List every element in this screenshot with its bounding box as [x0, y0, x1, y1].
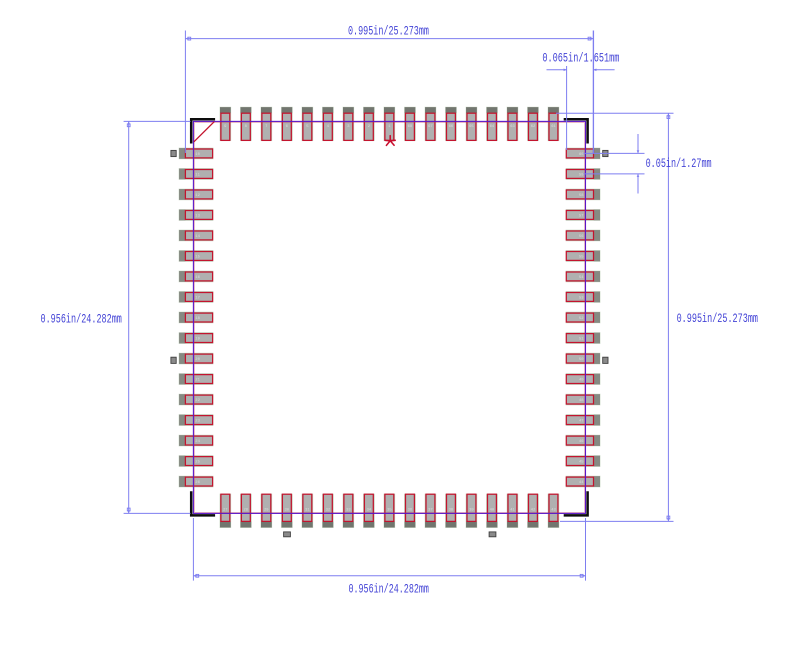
svg-text:40: 40 — [490, 508, 495, 512]
svg-text:30: 30 — [285, 508, 290, 512]
svg-text:66: 66 — [449, 125, 454, 129]
svg-text:29: 29 — [264, 508, 269, 512]
svg-text:27: 27 — [223, 508, 228, 512]
svg-text:42: 42 — [531, 508, 536, 512]
svg-text:26: 26 — [195, 481, 200, 485]
svg-text:34: 34 — [367, 508, 372, 512]
svg-text:38: 38 — [449, 508, 454, 512]
svg-text:14: 14 — [195, 235, 200, 239]
svg-text:19: 19 — [195, 338, 200, 342]
svg-text:0.995in/25.273mm: 0.995in/25.273mm — [677, 311, 759, 326]
svg-text:58: 58 — [579, 194, 584, 198]
svg-text:62: 62 — [531, 125, 536, 129]
svg-text:55: 55 — [579, 256, 584, 260]
svg-text:51: 51 — [579, 338, 584, 342]
svg-text:63: 63 — [510, 125, 515, 129]
svg-text:31: 31 — [305, 508, 310, 512]
svg-text:17: 17 — [195, 297, 200, 301]
svg-text:54: 54 — [579, 276, 584, 280]
svg-text:11: 11 — [195, 174, 200, 178]
svg-text:65: 65 — [469, 125, 474, 129]
svg-text:24: 24 — [195, 440, 200, 444]
svg-text:50: 50 — [579, 358, 584, 362]
svg-text:21: 21 — [195, 379, 200, 383]
svg-text:44: 44 — [579, 481, 584, 485]
svg-text:7: 7 — [265, 125, 267, 129]
svg-text:18: 18 — [195, 317, 200, 321]
svg-text:45: 45 — [579, 461, 584, 465]
svg-text:12: 12 — [195, 194, 200, 198]
svg-text:48: 48 — [579, 399, 584, 403]
svg-text:33: 33 — [346, 508, 351, 512]
svg-text:46: 46 — [579, 440, 584, 444]
svg-text:0.995in/25.273mm: 0.995in/25.273mm — [348, 23, 429, 38]
svg-text:57: 57 — [579, 215, 584, 219]
svg-text:28: 28 — [244, 508, 249, 512]
svg-text:0.956in/24.282mm: 0.956in/24.282mm — [41, 311, 123, 326]
svg-text:64: 64 — [490, 125, 495, 129]
svg-text:37: 37 — [428, 508, 433, 512]
svg-text:25: 25 — [195, 461, 200, 465]
svg-text:0.05in/1.27mm: 0.05in/1.27mm — [646, 156, 712, 171]
svg-text:23: 23 — [195, 420, 200, 424]
svg-text:68: 68 — [408, 125, 413, 129]
svg-text:56: 56 — [579, 235, 584, 239]
svg-text:13: 13 — [195, 215, 200, 219]
svg-text:20: 20 — [195, 358, 200, 362]
svg-text:32: 32 — [326, 508, 331, 512]
svg-text:61: 61 — [551, 125, 556, 129]
svg-text:39: 39 — [469, 508, 474, 512]
svg-text:0.956in/24.282mm: 0.956in/24.282mm — [348, 582, 429, 597]
svg-text:15: 15 — [195, 256, 200, 260]
svg-text:52: 52 — [579, 317, 584, 321]
svg-text:10: 10 — [195, 153, 200, 157]
svg-text:47: 47 — [579, 420, 584, 424]
svg-text:41: 41 — [510, 508, 515, 512]
svg-text:35: 35 — [387, 508, 392, 512]
svg-text:67: 67 — [428, 125, 433, 129]
svg-text:22: 22 — [195, 399, 200, 403]
svg-text:43: 43 — [551, 508, 556, 512]
svg-text:49: 49 — [579, 379, 584, 383]
svg-text:16: 16 — [195, 276, 200, 280]
svg-text:0.065in/1.651mm: 0.065in/1.651mm — [542, 51, 619, 66]
svg-text:36: 36 — [408, 508, 413, 512]
svg-text:53: 53 — [579, 297, 584, 301]
